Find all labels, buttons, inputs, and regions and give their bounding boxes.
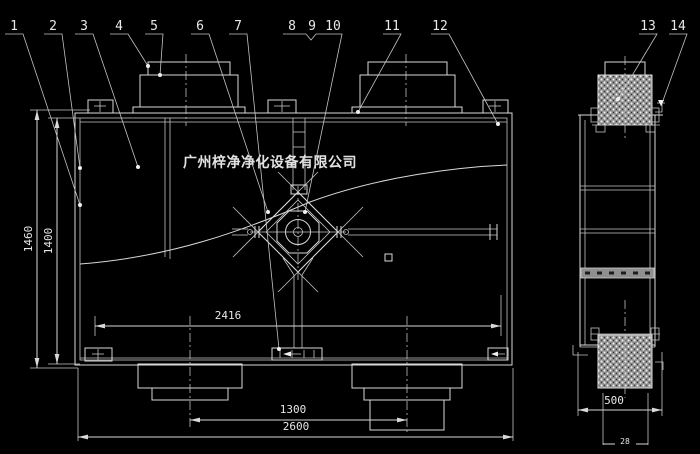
bottom-left-duct: [138, 316, 242, 430]
fan-scroll-curve: [80, 165, 507, 264]
dim-inner-width: 2416: [95, 295, 501, 336]
fan-assembly: [232, 118, 497, 348]
callout-14: 14: [658, 19, 687, 106]
dim-side-width-label: 500: [604, 394, 624, 407]
callout-14-label: 14: [670, 19, 686, 34]
dim-duct-spacing: 1300: [190, 403, 407, 420]
dim-overall-width-label: 2600: [283, 420, 310, 433]
callout-1-label: 1: [10, 19, 18, 34]
callout-7-label: 7: [234, 19, 242, 34]
callout-4-label: 4: [115, 19, 123, 34]
callout-12-label: 12: [432, 19, 448, 34]
body-shell: [75, 113, 512, 365]
top-right-duct: [352, 54, 462, 126]
callout-1: 1: [5, 19, 82, 207]
top-lug-left: [88, 100, 113, 113]
bottom-lug-left: [85, 348, 112, 361]
top-lug-right: [483, 100, 508, 113]
callout-2-label: 2: [49, 19, 57, 34]
callout-2: 2: [44, 19, 82, 170]
cad-drawing-canvas: 广州梓净净化设备有限公司 1460 1400 2416 1300: [0, 0, 700, 454]
callout-11-label: 11: [384, 19, 400, 34]
callout-7: 7: [229, 19, 281, 351]
bottom-right-duct: [352, 316, 462, 434]
callout-9-label: 9: [308, 19, 316, 34]
callout-8-label: 8: [288, 19, 296, 34]
dim-inner-width-label: 2416: [215, 309, 242, 322]
callout-12: 12: [431, 19, 500, 126]
dim-side-bottom-label: 28: [620, 437, 630, 446]
dim-duct-spacing-label: 1300: [280, 403, 307, 416]
internal-partition: [165, 118, 170, 259]
dim-overall-height-label: 1460: [22, 226, 35, 253]
front-view: 广州梓净净化设备有限公司 1460 1400 2416 1300: [22, 54, 513, 441]
top-lug-center: [268, 100, 296, 113]
callout-3-label: 3: [80, 19, 88, 34]
callout-3: 3: [75, 19, 140, 169]
dim-body-height-label: 1400: [42, 228, 55, 255]
side-view: 500 28: [573, 56, 665, 446]
callout-6-label: 6: [196, 19, 204, 34]
dim-body-height: 1400: [42, 118, 80, 364]
callout-5-label: 5: [150, 19, 158, 34]
top-left-duct: [133, 54, 245, 126]
inspection-port: [385, 254, 392, 261]
side-gray-band: [581, 268, 654, 278]
callout-4: 4: [110, 19, 150, 68]
callout-13-label: 13: [640, 19, 656, 34]
callout-11: 11: [356, 19, 401, 114]
callout-10-label: 10: [325, 19, 341, 34]
callout-6: 6: [191, 19, 270, 214]
watermark-text: 广州梓净净化设备有限公司: [183, 154, 357, 171]
